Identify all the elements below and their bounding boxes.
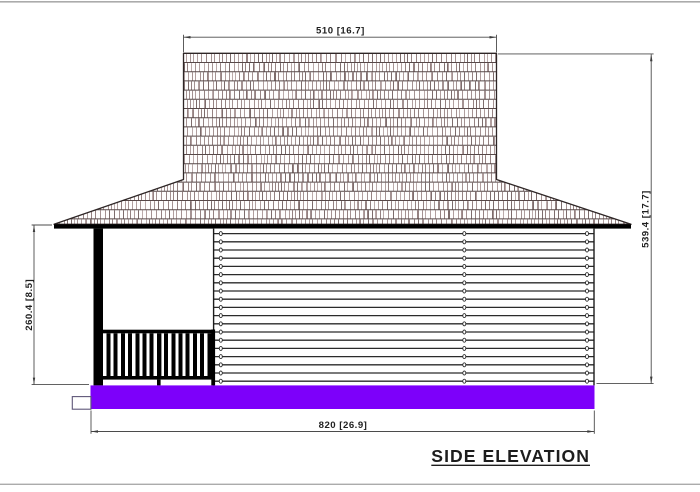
svg-text:820 [26.9]: 820 [26.9]: [319, 420, 368, 431]
svg-text:510 [16.7]: 510 [16.7]: [316, 26, 365, 37]
svg-text:SIDE ELEVATION: SIDE ELEVATION: [431, 446, 590, 466]
svg-text:539.4 [17.7]: 539.4 [17.7]: [641, 190, 652, 248]
svg-text:260.4 [8.5]: 260.4 [8.5]: [24, 279, 35, 331]
